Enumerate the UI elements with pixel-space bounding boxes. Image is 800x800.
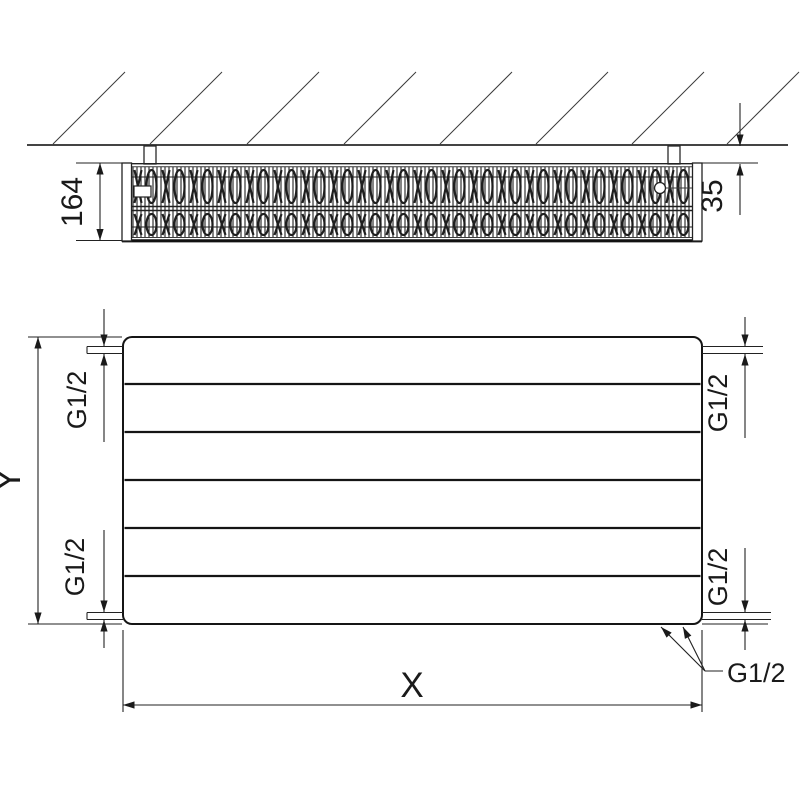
connection-stub-bottom-left — [87, 613, 123, 620]
connection-callout-bottom-right: G1/2 — [661, 627, 786, 688]
wall-mounting-brackets — [144, 146, 680, 164]
connection-size-label-callout: G1/2 — [727, 658, 786, 688]
dimension-connection-bottom-right: G1/2 — [703, 548, 745, 650]
radiator-top-section-view — [122, 163, 702, 241]
air-vent-detail — [655, 183, 666, 194]
convector-fins — [131, 167, 693, 237]
connection-stub-top-right — [702, 347, 763, 354]
connection-size-label-top-left: G1/2 — [62, 371, 92, 430]
dim-height-label: Y — [0, 468, 28, 491]
connection-stub-top-left — [87, 347, 123, 354]
drawing-canvas: 164 35 — [0, 0, 800, 800]
dim-depth-label: 164 — [56, 177, 89, 227]
radiator-technical-drawing: 164 35 — [0, 0, 800, 800]
dimension-depth-164: 164 — [56, 163, 122, 241]
dimension-width-x: X — [123, 630, 702, 712]
wall-hatching — [53, 72, 799, 144]
connection-size-label-top-right: G1/2 — [703, 374, 733, 433]
connection-size-label-bottom-left: G1/2 — [60, 538, 90, 597]
radiator-front-view — [87, 337, 771, 624]
dim-width-label: X — [400, 666, 423, 705]
dim-wall-gap-label: 35 — [696, 179, 729, 212]
connection-stub-bottom-right — [702, 613, 771, 625]
dimension-connection-bottom-left: G1/2 — [60, 530, 104, 648]
left-end-plate — [122, 163, 132, 241]
dimension-connection-top-left: G1/2 — [62, 309, 104, 442]
plug-detail — [134, 186, 151, 197]
dimension-connection-top-right: G1/2 — [703, 317, 745, 438]
connection-size-label-bottom-right: G1/2 — [703, 548, 733, 607]
dimension-wall-gap-35: 35 — [696, 103, 758, 215]
